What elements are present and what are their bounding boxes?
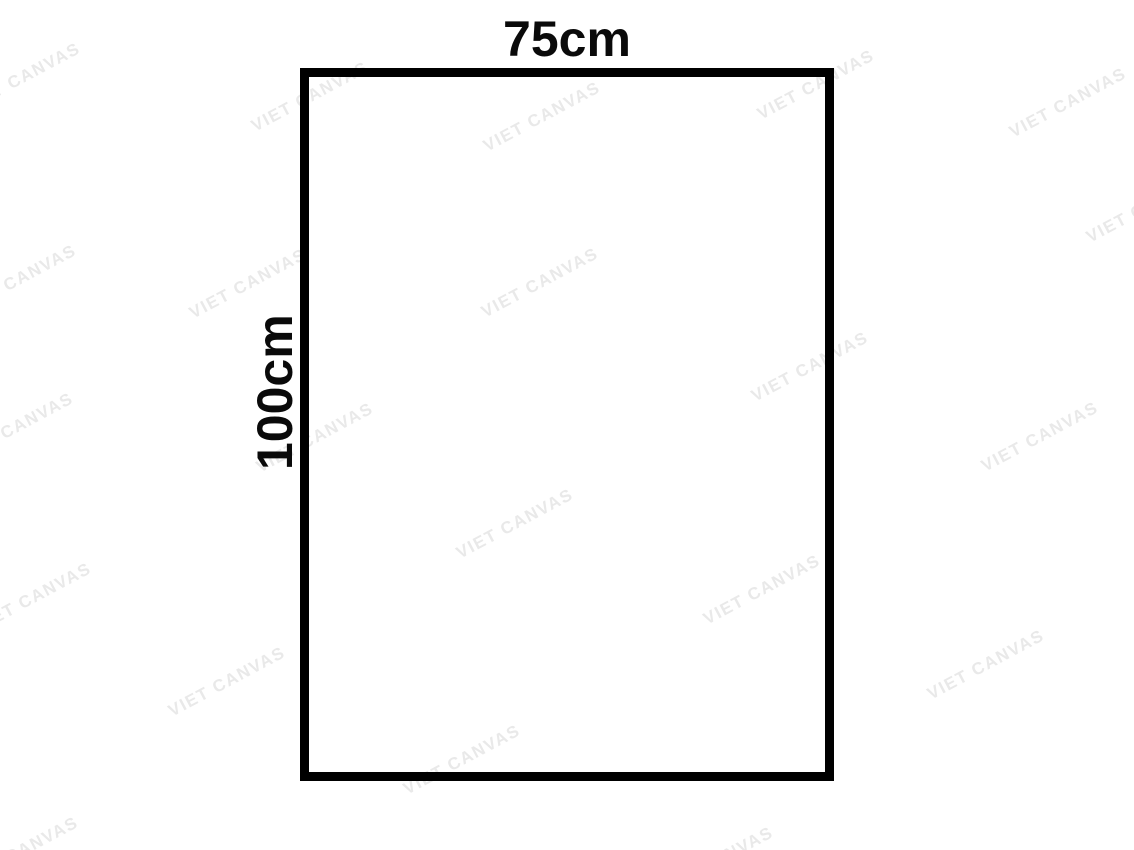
watermark-text: VIET CANVAS [924, 626, 1048, 704]
watermark-text: VIET CANVAS [1006, 64, 1130, 142]
watermark-text: VIET CANVAS [0, 39, 84, 117]
watermark-text: VIET CANVAS [653, 823, 777, 850]
dimension-rectangle [300, 68, 834, 781]
dimension-diagram: VIET CANVASVIET CANVASVIET CANVASVIET CA… [0, 0, 1134, 850]
watermark-text: VIET CANVAS [1083, 169, 1134, 247]
watermark-text: VIET CANVAS [0, 813, 82, 850]
watermark-text: VIET CANVAS [0, 241, 80, 319]
watermark-text: VIET CANVAS [186, 245, 310, 323]
watermark-text: VIET CANVAS [0, 559, 95, 637]
watermark-text: VIET CANVAS [0, 389, 77, 467]
watermark-text: VIET CANVAS [978, 398, 1102, 476]
width-dimension-label: 75cm [300, 14, 834, 64]
watermark-text: VIET CANVAS [165, 643, 289, 721]
height-dimension-label: 100cm [250, 322, 300, 470]
